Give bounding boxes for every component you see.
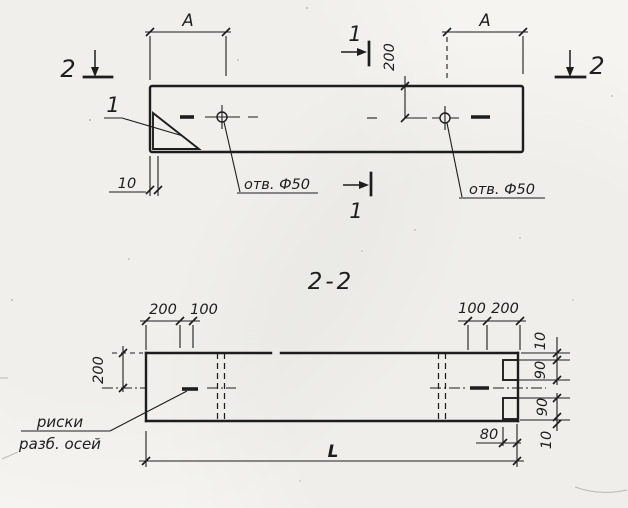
section-marker-1-bottom-number: 1 — [349, 199, 362, 223]
corner-detail-number: 1 — [106, 93, 119, 117]
chain-ticks — [553, 349, 561, 428]
section-dim-side-200: 200 — [91, 346, 143, 392]
hidden-hole-left-lines — [218, 353, 225, 421]
scan-artifact-curve — [575, 487, 627, 492]
axis-note-line1: риски — [36, 413, 84, 431]
dim-a-left-value: A — [181, 11, 193, 30]
section-marker-2-right: 2 — [556, 50, 605, 80]
scan-artifact-dash — [2, 452, 18, 459]
arrow-right-icon — [359, 181, 369, 189]
section-marker-2-left-number: 2 — [60, 55, 75, 83]
axis-note-leader — [110, 391, 187, 431]
dim-10-value: 10 — [118, 176, 136, 192]
hole-right-label: отв. Ф50 — [469, 182, 535, 198]
chain-top-10-value: 10 — [533, 332, 549, 350]
plan-beam-outline — [150, 86, 523, 152]
dim-right-top-extensions — [468, 325, 520, 350]
dim-200-value: 200 — [382, 43, 398, 71]
section-beam-outline — [146, 353, 518, 421]
plan-dim-200: 200 — [382, 43, 409, 122]
dim-right-200-value: 200 — [491, 301, 519, 317]
section-view: 2-2 200 — [18, 269, 570, 467]
hidden-hole-right-lines — [439, 353, 446, 421]
hole-left-label: отв. Ф50 — [244, 177, 310, 193]
dim-80-value: 80 — [480, 427, 498, 443]
arrow-down-icon — [566, 67, 574, 77]
dim-left-200-value: 200 — [149, 302, 177, 318]
plan-dim-10: 10 — [109, 156, 162, 196]
section-dim-chain-right: 10 90 90 10 — [519, 332, 570, 449]
section-title: 2-2 — [308, 269, 355, 295]
beam-drawing: 1 10 A A 200 — [0, 0, 628, 508]
axis-note-line2: разб. осей — [18, 435, 101, 453]
plan-dim-a-right: A — [442, 11, 528, 80]
section-dim-length: L — [139, 424, 524, 467]
plan-view: 1 10 A A 200 — [60, 11, 604, 223]
arrow-down-icon — [91, 67, 99, 77]
section-dim-left-top: 200 100 — [140, 302, 218, 350]
section-dim-right-top: 100 200 — [458, 301, 526, 350]
hole-left-leader — [224, 122, 240, 192]
chain-bottom-10-value: 10 — [539, 431, 555, 449]
dim-length-value: L — [328, 442, 339, 462]
chain-top-90-value: 90 — [533, 361, 549, 379]
dim-10-ticks — [146, 186, 162, 194]
lifting-hole-left: отв. Ф50 — [180, 105, 318, 193]
plan-dim-a-left: A — [145, 11, 231, 80]
dim-side-200-value: 200 — [91, 356, 107, 384]
section-dim-80: 80 — [476, 427, 521, 447]
hole-right-leader — [447, 123, 462, 197]
hidden-hole-lines — [218, 353, 446, 421]
section-marker-2-left: 2 — [60, 50, 112, 83]
dim-right-100-value: 100 — [458, 301, 486, 317]
section-marker-1-top-number: 1 — [348, 22, 361, 46]
section-marker-1-top: 1 — [341, 22, 369, 65]
end-notch-top — [503, 360, 518, 380]
chain-bottom-90-value: 90 — [535, 398, 551, 416]
end-notch-bottom — [503, 398, 518, 419]
section-marker-1-bottom: 1 — [343, 173, 371, 223]
corner-detail-callout: 1 — [104, 93, 183, 136]
dim-a-right-value: A — [478, 11, 490, 30]
arrow-right-icon — [357, 48, 367, 56]
dim-a-left-extensions — [150, 36, 226, 80]
drawing-sheet: 1 10 A A 200 — [0, 0, 628, 508]
section-marker-2-right-number: 2 — [589, 52, 604, 80]
dim-left-100-value: 100 — [190, 302, 218, 318]
section-centerlines — [102, 388, 546, 389]
dim-left-top-extensions — [146, 325, 193, 350]
